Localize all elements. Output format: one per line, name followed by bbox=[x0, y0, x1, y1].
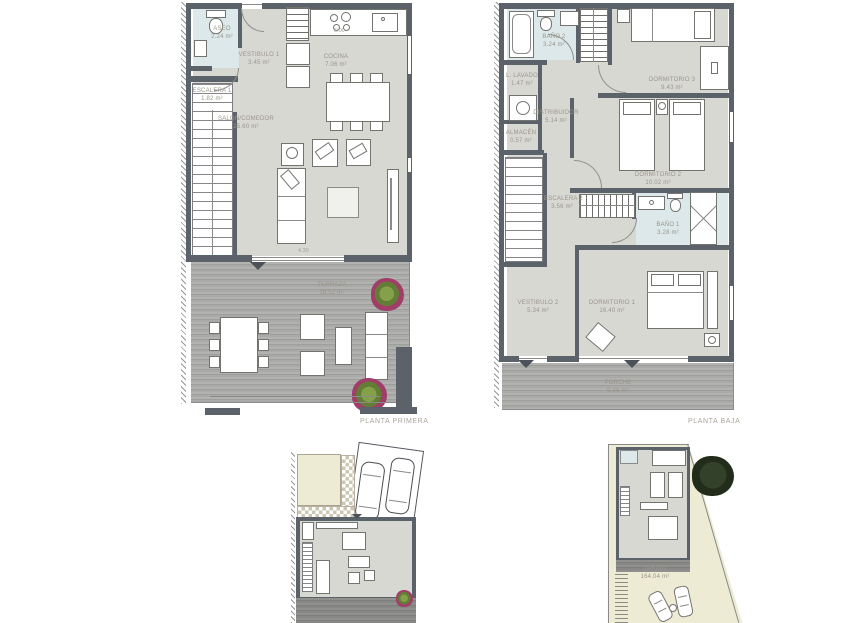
garden-label: JARDÍN 164.04 m² bbox=[633, 566, 677, 581]
room-name: VESTIBULO 2 bbox=[512, 300, 564, 308]
room-name: BAÑO 2 bbox=[536, 34, 572, 42]
mini-closet bbox=[640, 502, 668, 510]
room-name: L. LAVADO bbox=[505, 73, 539, 81]
wall-segment bbox=[499, 356, 519, 362]
room-name: DORMITORIO 3 bbox=[640, 77, 704, 85]
garden-name: JARDÍN bbox=[633, 566, 677, 574]
garden-area-value: 164.04 m² bbox=[633, 574, 677, 582]
mini-counter bbox=[316, 522, 358, 529]
plan-title-planta-baja: PLANTA BAJA bbox=[688, 418, 740, 425]
lounger-slat bbox=[678, 595, 687, 598]
mini-bed bbox=[648, 516, 678, 540]
toilet-bowl bbox=[670, 199, 681, 212]
site-plan-ground-floor: JARDÍN 164.04 m² bbox=[603, 443, 765, 623]
site-boundary-hatch bbox=[291, 452, 295, 623]
entrance-arrow bbox=[624, 360, 640, 368]
room-label-lavado: L. LAVADO 1.47 m² bbox=[505, 73, 539, 88]
room-area: 3.56 m² bbox=[544, 204, 580, 212]
room-area: 10.02 m² bbox=[630, 180, 686, 188]
window-opening bbox=[730, 112, 733, 142]
room-area: 5.34 m² bbox=[512, 308, 564, 316]
room-label-porche: PORCHE 9.86 m² bbox=[596, 380, 640, 395]
staircase-2 bbox=[505, 157, 543, 262]
floorplan-sheet: ASEO 2.24 m² VESTIBULO 1 3.45 m² COCINA … bbox=[0, 0, 865, 623]
room-label-dormitorio1: DORMITORIO 1 16.40 m² bbox=[584, 300, 640, 315]
room-name: ESCALERA 2 bbox=[544, 196, 580, 204]
porch-edge bbox=[502, 409, 734, 410]
toilet-tank bbox=[537, 10, 555, 17]
mini-cabinet bbox=[302, 522, 314, 540]
room-area: 5.14 m² bbox=[532, 118, 580, 126]
plot-edge bbox=[608, 444, 689, 445]
mini-table bbox=[342, 532, 366, 550]
mini-sofa bbox=[348, 556, 370, 568]
room-area: 16.40 m² bbox=[584, 308, 640, 316]
bench bbox=[707, 271, 718, 329]
mini-staircase bbox=[620, 486, 630, 516]
mini-bed bbox=[650, 472, 665, 498]
closet-handle bbox=[711, 62, 718, 74]
washer-drum bbox=[516, 101, 530, 115]
wall-segment bbox=[608, 3, 612, 65]
mini-bathroom bbox=[620, 450, 638, 464]
wardrobe bbox=[580, 8, 608, 62]
room-label-dormitorio2: DORMITORIO 2 10.02 m² bbox=[630, 172, 686, 187]
wall-segment bbox=[499, 150, 544, 155]
bed-fold bbox=[652, 8, 653, 42]
room-area: 3.28 m² bbox=[650, 230, 686, 238]
closet-rail bbox=[579, 205, 635, 206]
washbasin bbox=[560, 11, 579, 26]
porch-edge bbox=[733, 363, 734, 410]
wall-segment bbox=[499, 3, 504, 362]
mini-kitchen-block bbox=[316, 560, 330, 594]
wall-segment bbox=[570, 98, 574, 158]
pillow bbox=[678, 274, 701, 286]
entrance-arrow bbox=[352, 514, 362, 519]
shower bbox=[690, 192, 717, 245]
room-area: 9.86 m² bbox=[596, 388, 640, 396]
lounger-slat bbox=[658, 607, 666, 612]
car-windshield bbox=[363, 474, 381, 477]
garden-patch bbox=[297, 454, 341, 506]
room-label-escalera2: ESCALERA 2 3.56 m² bbox=[544, 196, 580, 211]
car-windshield bbox=[393, 470, 411, 473]
pillow bbox=[694, 11, 711, 39]
nightstand bbox=[617, 9, 630, 23]
wardrobe-rail bbox=[593, 8, 594, 62]
window-opening bbox=[730, 286, 733, 320]
room-name: PORCHE bbox=[596, 380, 640, 388]
room-area: 0.57 m² bbox=[503, 138, 539, 146]
wall-segment bbox=[575, 245, 734, 250]
room-label-dormitorio3: DORMITORIO 3 9.43 m² bbox=[640, 77, 704, 92]
pillow bbox=[651, 274, 674, 286]
room-label-bano2: BAÑO 2 3.24 m² bbox=[536, 34, 572, 49]
mini-armchair bbox=[348, 572, 360, 584]
room-name: DORMITORIO 2 bbox=[630, 172, 686, 180]
sink-faucet bbox=[649, 200, 654, 205]
pillow bbox=[673, 102, 701, 115]
wall-segment bbox=[547, 356, 579, 362]
bathtub-basin bbox=[512, 14, 531, 54]
room-name: DORMITORIO 1 bbox=[584, 300, 640, 308]
room-label-vestibulo2: VESTIBULO 2 5.34 m² bbox=[512, 300, 564, 315]
room-label-bano1: BAÑO 1 3.28 m² bbox=[650, 222, 686, 237]
door-sill bbox=[519, 358, 547, 359]
room-area: 1.47 m² bbox=[505, 81, 539, 89]
entrance-arrow bbox=[518, 360, 534, 368]
lounger-slat bbox=[654, 600, 662, 605]
tree bbox=[692, 456, 734, 496]
mini-bed bbox=[652, 450, 686, 466]
site-plan-upper-floor bbox=[0, 440, 440, 623]
plot-edge bbox=[608, 444, 609, 623]
door-sill bbox=[579, 358, 688, 359]
table-lamp bbox=[658, 102, 666, 110]
mini-coffee-table bbox=[364, 570, 375, 581]
table-lamp bbox=[708, 336, 716, 344]
room-name: BAÑO 1 bbox=[650, 222, 686, 230]
wall-segment bbox=[598, 93, 734, 98]
room-name: DISTRIBUIDOR bbox=[532, 110, 580, 118]
plant bbox=[396, 590, 413, 607]
wall-segment bbox=[499, 262, 547, 267]
wall-segment bbox=[688, 356, 734, 362]
mini-bed bbox=[668, 472, 683, 498]
toilet-bowl bbox=[540, 17, 552, 31]
room-area: 3.24 m² bbox=[536, 42, 572, 50]
lounger-slat bbox=[680, 604, 689, 607]
car-rear-window bbox=[389, 500, 407, 503]
pillow bbox=[623, 102, 651, 115]
plan-planta-baja: BAÑO 2 3.24 m² L. LAVADO 1.47 m² ALMACÉN… bbox=[0, 0, 865, 440]
bed-fold bbox=[647, 292, 704, 293]
room-name: ALMACÉN bbox=[503, 130, 539, 138]
car-rear-window bbox=[359, 506, 377, 509]
hall-closet bbox=[579, 194, 635, 218]
room-label-almacen: ALMACÉN 0.57 m² bbox=[503, 130, 539, 145]
wall-segment bbox=[575, 250, 579, 362]
garden-table bbox=[669, 604, 677, 612]
mini-staircase bbox=[302, 542, 313, 592]
room-area: 9.43 m² bbox=[640, 85, 704, 93]
room-label-distribuidor: DISTRIBUIDOR 5.14 m² bbox=[532, 110, 580, 125]
site-boundary-hatch bbox=[615, 574, 628, 623]
